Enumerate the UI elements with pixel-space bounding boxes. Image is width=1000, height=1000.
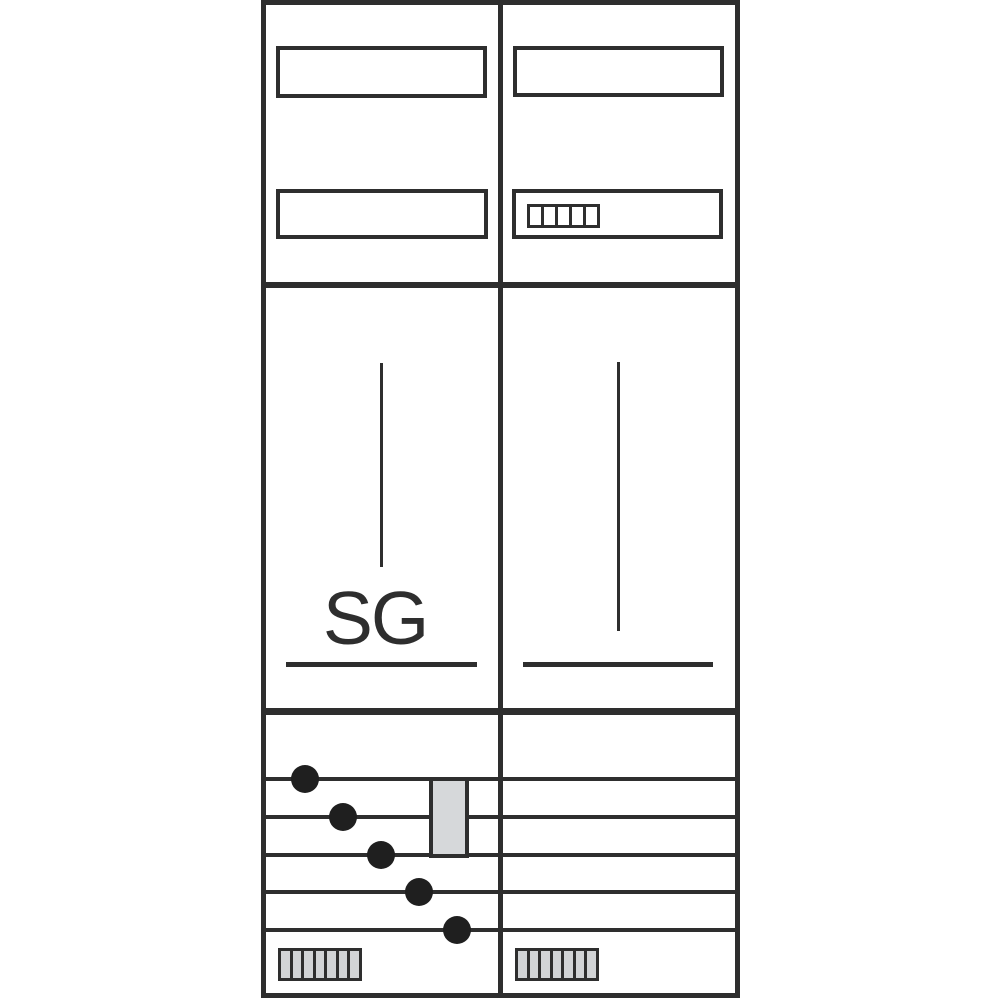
connection-dot-1 xyxy=(291,765,319,793)
label-slot-top-right xyxy=(513,46,724,97)
connector-block xyxy=(429,777,469,858)
display-digit-cell xyxy=(583,204,600,228)
label-slot-mid-left xyxy=(276,189,488,239)
terminal-bar xyxy=(290,951,302,978)
connection-dot-4 xyxy=(405,878,433,906)
sg-label: SG xyxy=(320,581,430,656)
terminal-bar xyxy=(561,951,573,978)
terminal-bar xyxy=(281,951,290,978)
meter-cabinet-diagram: SG xyxy=(0,0,1000,1000)
terminal-block-left xyxy=(278,948,362,981)
bottom-section-divider-line xyxy=(261,708,740,715)
right-field-center-line xyxy=(617,362,620,631)
terminal-bar xyxy=(584,951,596,978)
connection-dot-2 xyxy=(329,803,357,831)
terminal-block-right xyxy=(515,948,599,981)
terminal-bar xyxy=(347,951,359,978)
top-section-divider-line xyxy=(261,282,740,288)
terminal-bar xyxy=(527,951,539,978)
terminal-bar xyxy=(324,951,336,978)
terminal-bar xyxy=(518,951,527,978)
counter-display xyxy=(527,204,600,228)
left-field-underline xyxy=(286,662,477,667)
busbar-line-4 xyxy=(264,890,737,894)
connection-dot-3 xyxy=(367,841,395,869)
terminal-bar xyxy=(336,951,348,978)
column-divider-line xyxy=(498,0,503,998)
terminal-bar xyxy=(313,951,325,978)
label-slot-top-left xyxy=(276,46,487,98)
busbar-line-1 xyxy=(264,777,737,781)
right-field-underline xyxy=(523,662,713,667)
busbar-line-3 xyxy=(264,853,737,857)
terminal-bar xyxy=(301,951,313,978)
left-field-center-line xyxy=(380,363,383,567)
busbar-line-5 xyxy=(264,928,737,932)
terminal-bar xyxy=(538,951,550,978)
terminal-bar xyxy=(573,951,585,978)
terminal-bar xyxy=(550,951,562,978)
connection-dot-5 xyxy=(443,916,471,944)
